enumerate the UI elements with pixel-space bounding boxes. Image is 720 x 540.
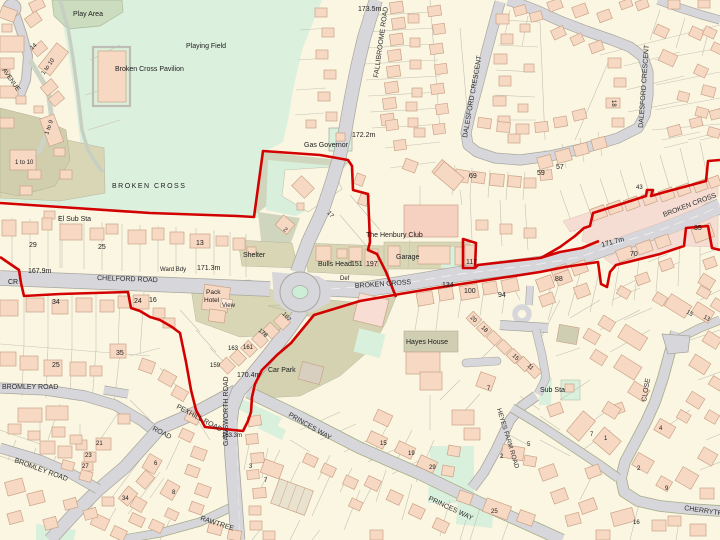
svg-text:170.4m: 170.4m xyxy=(237,372,261,379)
svg-text:100: 100 xyxy=(464,288,476,295)
svg-text:Playing Field: Playing Field xyxy=(186,43,226,50)
svg-text:24: 24 xyxy=(134,298,142,305)
svg-text:43: 43 xyxy=(636,185,643,191)
svg-text:57: 57 xyxy=(556,164,564,171)
svg-text:88: 88 xyxy=(555,276,563,283)
svg-text:69: 69 xyxy=(469,173,477,180)
svg-text:The Henbury Club: The Henbury Club xyxy=(366,232,423,239)
svg-text:35: 35 xyxy=(694,225,702,232)
svg-text:1 to 10: 1 to 10 xyxy=(15,160,34,166)
svg-text:BROKEN CROSS: BROKEN CROSS xyxy=(112,183,186,190)
svg-text:70: 70 xyxy=(630,251,638,258)
svg-text:25: 25 xyxy=(52,362,60,369)
svg-text:16: 16 xyxy=(149,297,157,304)
svg-text:16: 16 xyxy=(633,520,640,526)
svg-text:163: 163 xyxy=(228,346,239,352)
svg-text:Play Area: Play Area xyxy=(73,11,103,18)
svg-text:29: 29 xyxy=(29,242,37,249)
svg-text:59: 59 xyxy=(537,170,545,177)
svg-text:15: 15 xyxy=(380,441,387,447)
svg-text:94: 94 xyxy=(498,292,506,299)
svg-text:Hayes House: Hayes House xyxy=(406,339,448,346)
svg-text:18: 18 xyxy=(610,100,616,107)
svg-text:Def: Def xyxy=(340,276,350,282)
svg-text:Broken Cross Pavilion: Broken Cross Pavilion xyxy=(115,66,184,73)
svg-text:Bulls Head: Bulls Head xyxy=(318,261,352,268)
svg-text:Ward Bdy: Ward Bdy xyxy=(160,267,186,273)
svg-text:Sub Sta: Sub Sta xyxy=(540,387,565,394)
svg-text:View: View xyxy=(222,303,236,309)
svg-text:172.2m: 172.2m xyxy=(352,132,376,139)
svg-text:CR: CR xyxy=(8,279,18,286)
svg-text:29: 29 xyxy=(429,465,436,471)
svg-text:163.3m: 163.3m xyxy=(222,433,242,439)
svg-text:25: 25 xyxy=(491,509,498,515)
svg-text:27: 27 xyxy=(82,464,89,470)
svg-text:Pack: Pack xyxy=(206,289,221,296)
svg-text:BROMLEY ROAD: BROMLEY ROAD xyxy=(2,384,58,391)
svg-text:173.5m: 173.5m xyxy=(358,6,382,13)
svg-text:25: 25 xyxy=(98,244,106,251)
svg-text:35: 35 xyxy=(116,350,124,357)
svg-text:34: 34 xyxy=(122,496,129,502)
svg-text:Garage: Garage xyxy=(396,254,419,261)
svg-text:171.3m: 171.3m xyxy=(197,265,221,272)
svg-text:23: 23 xyxy=(85,453,92,459)
svg-text:151: 151 xyxy=(351,261,363,268)
svg-text:159: 159 xyxy=(210,363,221,369)
svg-text:167.9m: 167.9m xyxy=(28,268,52,275)
svg-text:13: 13 xyxy=(196,240,204,247)
svg-text:34: 34 xyxy=(52,299,60,306)
svg-text:117: 117 xyxy=(466,259,477,266)
svg-text:Car Park: Car Park xyxy=(268,367,296,374)
svg-text:Hotel: Hotel xyxy=(204,297,220,304)
svg-text:El Sub Sta: El Sub Sta xyxy=(58,216,91,223)
svg-text:19: 19 xyxy=(408,451,415,457)
svg-text:134: 134 xyxy=(442,282,454,289)
svg-text:Shelter: Shelter xyxy=(243,252,266,259)
svg-text:197: 197 xyxy=(366,261,378,268)
svg-text:Gas Governor: Gas Governor xyxy=(304,142,349,149)
svg-text:161: 161 xyxy=(243,345,254,351)
svg-text:21: 21 xyxy=(96,441,103,447)
